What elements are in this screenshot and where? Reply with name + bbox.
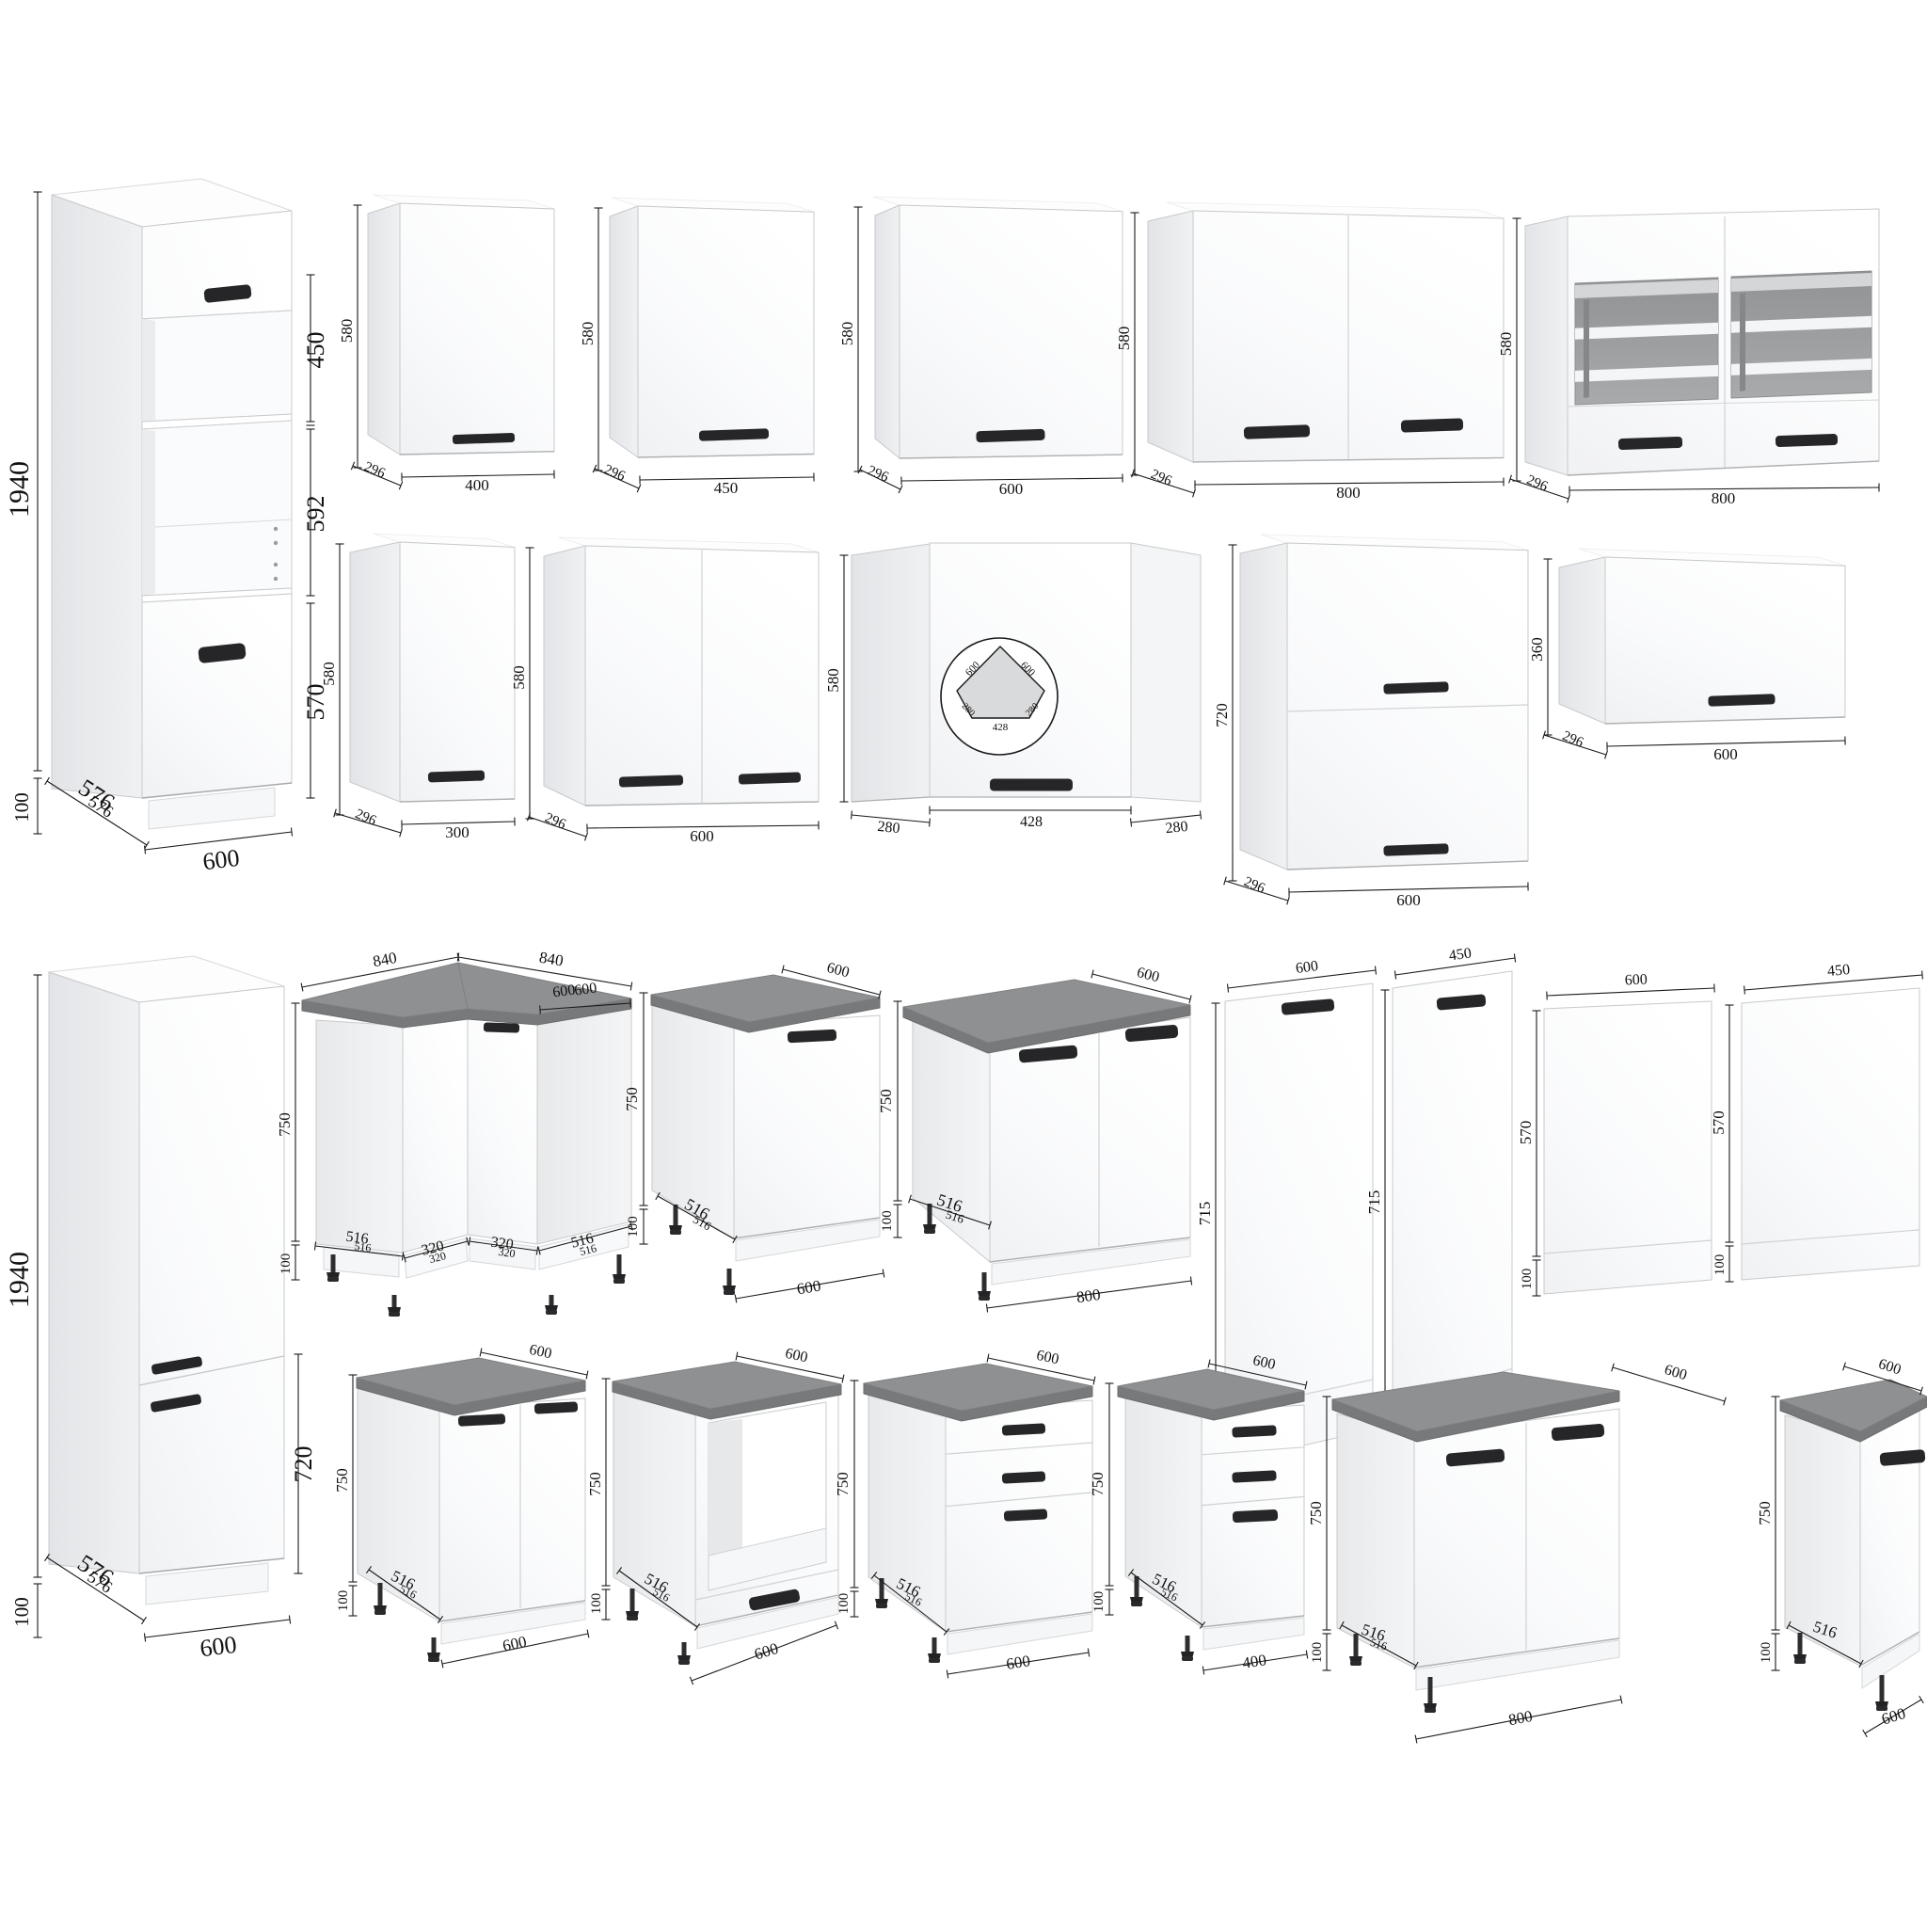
svg-text:100: 100	[336, 1590, 351, 1612]
svg-text:600: 600	[1005, 1652, 1031, 1673]
svg-text:800: 800	[1712, 489, 1736, 507]
svg-text:580: 580	[338, 319, 356, 343]
svg-text:450: 450	[302, 332, 329, 369]
svg-text:400: 400	[465, 476, 489, 494]
svg-text:600: 600	[1713, 745, 1738, 763]
svg-text:100: 100	[1759, 1642, 1774, 1664]
svg-text:100: 100	[836, 1593, 852, 1615]
svg-text:450: 450	[1826, 962, 1850, 980]
svg-text:715: 715	[1365, 1190, 1383, 1215]
svg-text:750: 750	[1089, 1472, 1107, 1496]
svg-text:720: 720	[1213, 703, 1231, 727]
svg-text:750: 750	[877, 1089, 895, 1113]
svg-text:600: 600	[1624, 971, 1648, 988]
svg-text:600: 600	[690, 827, 714, 845]
svg-text:750: 750	[834, 1472, 852, 1496]
svg-text:580: 580	[320, 662, 338, 686]
svg-text:428: 428	[1020, 814, 1043, 830]
svg-text:750: 750	[276, 1112, 294, 1137]
svg-text:750: 750	[586, 1472, 604, 1496]
svg-text:750: 750	[333, 1468, 351, 1493]
svg-text:516: 516	[354, 1239, 373, 1254]
svg-text:580: 580	[1115, 327, 1133, 351]
svg-text:100: 100	[589, 1593, 604, 1615]
svg-text:100: 100	[1712, 1254, 1728, 1276]
svg-text:100: 100	[279, 1253, 294, 1275]
svg-text:100: 100	[880, 1210, 895, 1232]
svg-text:450: 450	[714, 479, 739, 497]
svg-text:600: 600	[201, 844, 241, 876]
svg-text:100: 100	[1310, 1642, 1325, 1664]
svg-text:100: 100	[10, 1597, 33, 1627]
svg-text:100: 100	[626, 1216, 641, 1237]
svg-text:100: 100	[1091, 1591, 1107, 1613]
svg-text:592: 592	[302, 496, 329, 533]
svg-text:600: 600	[573, 980, 597, 998]
svg-text:1940: 1940	[4, 461, 35, 518]
svg-text:570: 570	[1517, 1121, 1535, 1145]
svg-text:580: 580	[824, 668, 842, 693]
svg-text:300: 300	[445, 823, 470, 841]
svg-text:715: 715	[1196, 1202, 1214, 1226]
svg-text:1940: 1940	[4, 1252, 35, 1308]
svg-text:570: 570	[1710, 1110, 1728, 1135]
svg-text:720: 720	[290, 1446, 317, 1483]
svg-text:580: 580	[838, 322, 856, 346]
svg-text:360: 360	[1528, 637, 1546, 662]
svg-text:800: 800	[1075, 1285, 1102, 1306]
svg-text:100: 100	[10, 792, 33, 822]
svg-text:450: 450	[1448, 945, 1473, 964]
svg-text:580: 580	[510, 665, 528, 690]
svg-text:600: 600	[551, 982, 576, 1000]
svg-text:750: 750	[1307, 1501, 1325, 1525]
svg-text:750: 750	[623, 1087, 641, 1111]
svg-text:600: 600	[1396, 891, 1421, 909]
svg-text:580: 580	[579, 322, 597, 346]
svg-text:580: 580	[1497, 332, 1515, 357]
svg-text:428: 428	[993, 722, 1009, 733]
svg-text:100: 100	[1520, 1269, 1535, 1290]
svg-text:320: 320	[498, 1245, 517, 1260]
svg-text:750: 750	[1756, 1501, 1774, 1525]
svg-text:600: 600	[1295, 958, 1319, 977]
svg-text:400: 400	[1241, 1651, 1267, 1672]
svg-text:280: 280	[1165, 819, 1189, 837]
svg-text:570: 570	[302, 684, 329, 721]
svg-text:600: 600	[999, 480, 1024, 498]
svg-text:600: 600	[199, 1631, 238, 1663]
svg-text:280: 280	[877, 819, 901, 837]
svg-text:800: 800	[1336, 484, 1361, 502]
